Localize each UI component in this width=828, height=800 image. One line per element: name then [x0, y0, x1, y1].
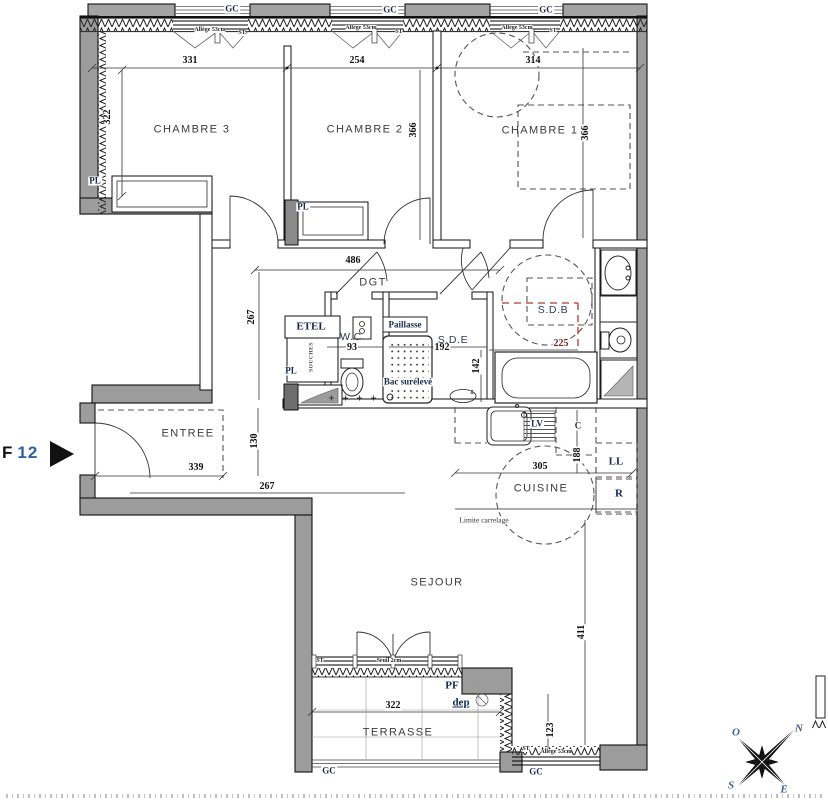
toilet-tank-wc — [341, 359, 363, 368]
door-chambre-1 — [543, 190, 593, 240]
cropped-caption-strip — [6, 794, 822, 798]
door-slab — [284, 384, 298, 410]
parapet-cap — [88, 4, 175, 17]
bed-outline-ch1 — [518, 105, 630, 189]
fridge-slot — [596, 479, 637, 512]
terrace-railing — [312, 760, 500, 767]
door-chambre-3 — [230, 196, 278, 244]
dashed-annotations — [98, 33, 637, 544]
paillasse-counter — [383, 317, 427, 332]
window-chambre-1 — [490, 7, 563, 49]
wall-nook-corner — [600, 745, 647, 770]
flat-number-marker: F12 — [2, 443, 38, 463]
wall-entree-left-a — [80, 403, 95, 423]
door-sde — [440, 252, 489, 294]
flat-number: 12 — [17, 443, 38, 462]
wall-entree-bottom — [80, 498, 312, 515]
turning-circle-cuisine — [496, 446, 594, 544]
handbasin-wc — [353, 317, 371, 339]
compass-rose — [738, 729, 795, 786]
partition-landing — [200, 214, 212, 390]
dishwasher — [524, 411, 555, 441]
sdb-outline — [527, 278, 592, 325]
door-chambre-2 — [384, 198, 430, 244]
toilet-right — [609, 328, 631, 352]
parapet-cap — [250, 4, 330, 17]
etel-closet — [285, 316, 340, 338]
nook-window — [512, 757, 600, 765]
parapet-cap — [563, 4, 647, 17]
toilet-tank-right — [601, 332, 609, 349]
washer-slot — [596, 443, 637, 477]
entry-door — [95, 423, 150, 478]
door-wc — [336, 252, 387, 294]
toilet-wc — [341, 368, 363, 396]
partition-ch2-ch1 — [433, 31, 441, 242]
door-sdb — [461, 248, 510, 290]
technical-shaft — [287, 338, 338, 382]
flat-arrow — [50, 441, 74, 467]
arrow-icon — [50, 441, 74, 467]
floorplan-drawing — [0, 0, 828, 800]
floorplan-page: CHAMBRE 3CHAMBRE 2CHAMBRE 1DGTENTREEW.CS… — [0, 0, 828, 800]
entree-open-boundary — [98, 410, 223, 478]
wall-sejour-pier — [462, 668, 512, 694]
wall-sejour-left — [295, 515, 312, 772]
flat-prefix: F — [2, 443, 13, 462]
neighbor-window — [816, 676, 825, 718]
sejour-window — [312, 657, 462, 665]
window-chambre-2 — [330, 7, 405, 49]
turning-circle-ch1 — [455, 33, 539, 117]
wall-left — [80, 16, 98, 214]
facade-windows — [173, 7, 563, 49]
window-chambre-3 — [173, 7, 250, 49]
wall-right — [637, 16, 647, 746]
parapet-cap — [405, 4, 490, 17]
closet-door-slab — [285, 200, 298, 245]
wall-entree-top — [92, 385, 212, 403]
